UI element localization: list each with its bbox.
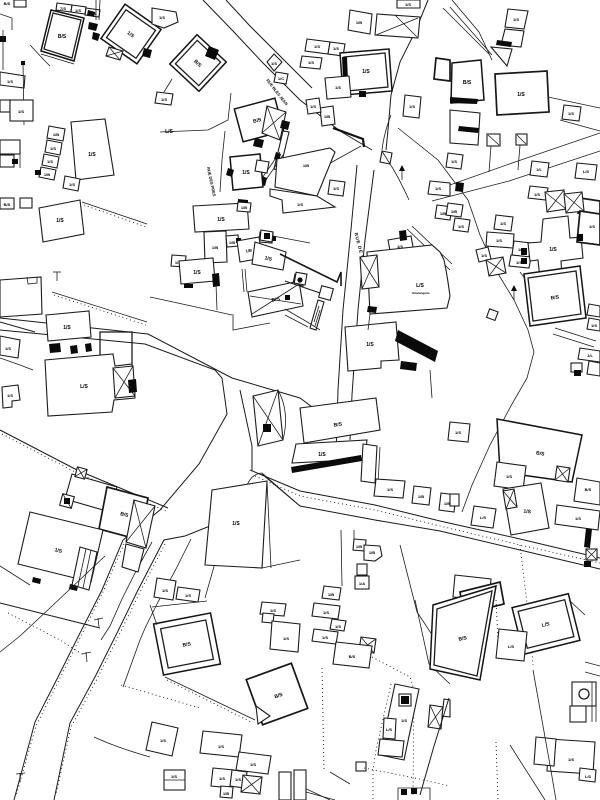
- svg-text:1/B: 1/B: [418, 494, 424, 499]
- svg-text:1/S: 1/S: [451, 159, 457, 164]
- svg-text:1/S: 1/S: [322, 635, 328, 640]
- svg-text:1/A: 1/A: [359, 581, 365, 586]
- svg-text:1/S: 1/S: [271, 61, 277, 66]
- svg-text:1/S: 1/S: [88, 152, 96, 158]
- svg-text:1/S: 1/S: [335, 85, 341, 90]
- svg-text:1/S: 1/S: [270, 608, 276, 613]
- svg-text:L/S: L/S: [416, 283, 424, 289]
- svg-text:1/C: 1/C: [278, 76, 284, 81]
- svg-text:B/S: B/S: [4, 1, 11, 6]
- svg-text:1/B: 1/B: [324, 114, 330, 119]
- svg-text:1/S: 1/S: [591, 323, 597, 328]
- svg-text:1/B: 1/B: [212, 245, 218, 250]
- svg-text:1/L: 1/L: [587, 353, 593, 358]
- svg-text:1/S: 1/S: [235, 777, 241, 782]
- svg-text:1/S: 1/S: [435, 186, 441, 191]
- svg-text:1/S: 1/S: [75, 8, 81, 13]
- svg-text:L/S: L/S: [480, 515, 487, 520]
- svg-text:1/S: 1/S: [366, 342, 374, 348]
- svg-text:1/S: 1/S: [401, 718, 407, 723]
- svg-text:1/S: 1/S: [333, 186, 339, 191]
- svg-text:1/S: 1/S: [161, 97, 167, 102]
- svg-text:1/S: 1/S: [568, 111, 574, 116]
- svg-text:1/S: 1/S: [18, 109, 24, 114]
- svg-text:1/B: 1/B: [451, 209, 457, 214]
- svg-text:1/S: 1/S: [50, 146, 56, 151]
- svg-text:B/S: B/S: [463, 80, 472, 86]
- svg-text:1/S: 1/S: [549, 247, 557, 253]
- svg-text:L/S: L/S: [585, 774, 592, 779]
- svg-text:1/S: 1/S: [575, 516, 581, 521]
- svg-text:1/S: 1/S: [318, 452, 326, 458]
- svg-text:B/S: B/S: [58, 34, 67, 40]
- svg-text:1/S: 1/S: [219, 776, 225, 781]
- svg-text:B/S: B/S: [585, 487, 592, 492]
- svg-text:1/S: 1/S: [513, 17, 519, 22]
- svg-text:1/S: 1/S: [534, 192, 540, 197]
- svg-text:1/B: 1/B: [303, 163, 309, 168]
- svg-text:L/S: L/S: [386, 727, 393, 732]
- svg-text:1/S: 1/S: [323, 610, 329, 615]
- svg-text:1/S: 1/S: [405, 2, 411, 7]
- svg-text:1/B: 1/B: [440, 211, 446, 216]
- svg-text:1/B: 1/B: [44, 172, 50, 177]
- svg-text:1/S: 1/S: [47, 159, 53, 164]
- svg-text:7/S: 7/S: [60, 6, 66, 11]
- svg-text:1/S: 1/S: [589, 224, 595, 229]
- svg-text:B/S: B/S: [333, 421, 343, 428]
- svg-text:1/S: 1/S: [242, 170, 250, 176]
- svg-text:1/S: 1/S: [458, 224, 464, 229]
- svg-text:1/S: 1/S: [409, 104, 415, 109]
- svg-text:1/S: 1/S: [308, 60, 314, 65]
- svg-text:1/S: 1/S: [63, 325, 71, 331]
- svg-text:1/S: 1/S: [297, 202, 303, 207]
- svg-text:B/S: B/S: [550, 294, 560, 301]
- svg-text:1/B: 1/B: [229, 240, 235, 245]
- svg-text:1/S: 1/S: [162, 588, 168, 593]
- svg-text:1/B: 1/B: [53, 132, 59, 137]
- svg-text:1/L: 1/L: [536, 167, 542, 172]
- svg-text:1/S: 1/S: [500, 221, 506, 226]
- svg-text:1/B: 1/B: [241, 205, 247, 210]
- svg-text:1/S: 1/S: [362, 69, 370, 75]
- svg-text:L/S: L/S: [165, 129, 173, 135]
- svg-text:1/S: 1/S: [160, 738, 166, 743]
- svg-text:1/B: 1/B: [356, 20, 362, 25]
- svg-text:1/S: 1/S: [171, 774, 177, 779]
- svg-text:1/S: 1/S: [506, 474, 512, 479]
- svg-text:1/B: 1/B: [356, 544, 362, 549]
- svg-text:B/S: B/S: [349, 654, 356, 659]
- svg-text:1/S: 1/S: [568, 757, 574, 762]
- svg-text:1/S: 1/S: [314, 44, 320, 49]
- svg-text:1/B: 1/B: [369, 550, 375, 555]
- svg-text:1/S: 1/S: [5, 346, 11, 351]
- svg-text:Boulangerie: Boulangerie: [412, 291, 430, 295]
- svg-text:1/B: 1/B: [328, 592, 334, 597]
- svg-text:L/S: L/S: [508, 644, 515, 649]
- svg-text:1/S: 1/S: [193, 270, 201, 276]
- svg-text:1/S: 1/S: [310, 104, 316, 109]
- svg-text:1/B: 1/B: [444, 501, 450, 506]
- svg-text:1/B: 1/B: [223, 791, 229, 796]
- svg-text:1/S: 1/S: [387, 487, 393, 492]
- svg-text:L/S: L/S: [80, 384, 88, 390]
- svg-text:1/S: 1/S: [218, 744, 224, 749]
- svg-text:L/S: L/S: [583, 169, 590, 174]
- svg-text:1/S: 1/S: [56, 218, 64, 224]
- svg-text:1/S: 1/S: [283, 636, 289, 641]
- svg-text:1/S: 1/S: [333, 46, 339, 51]
- svg-text:1/S: 1/S: [523, 509, 532, 516]
- svg-text:1/S: 1/S: [7, 79, 13, 84]
- svg-text:1/S: 1/S: [69, 182, 75, 187]
- svg-text:1/S: 1/S: [496, 238, 502, 243]
- svg-text:1/S: 1/S: [335, 624, 341, 629]
- svg-text:1/S: 1/S: [250, 762, 256, 767]
- svg-text:1/S: 1/S: [217, 217, 225, 223]
- svg-text:1/S: 1/S: [517, 92, 525, 98]
- svg-text:1/S: 1/S: [481, 253, 487, 258]
- svg-text:1/S: 1/S: [232, 521, 240, 527]
- svg-text:1/S: 1/S: [455, 430, 461, 435]
- svg-text:B/S: B/S: [4, 202, 11, 207]
- svg-text:1/S: 1/S: [7, 393, 13, 398]
- svg-text:1/S: 1/S: [185, 593, 191, 598]
- svg-text:1/S: 1/S: [159, 15, 165, 20]
